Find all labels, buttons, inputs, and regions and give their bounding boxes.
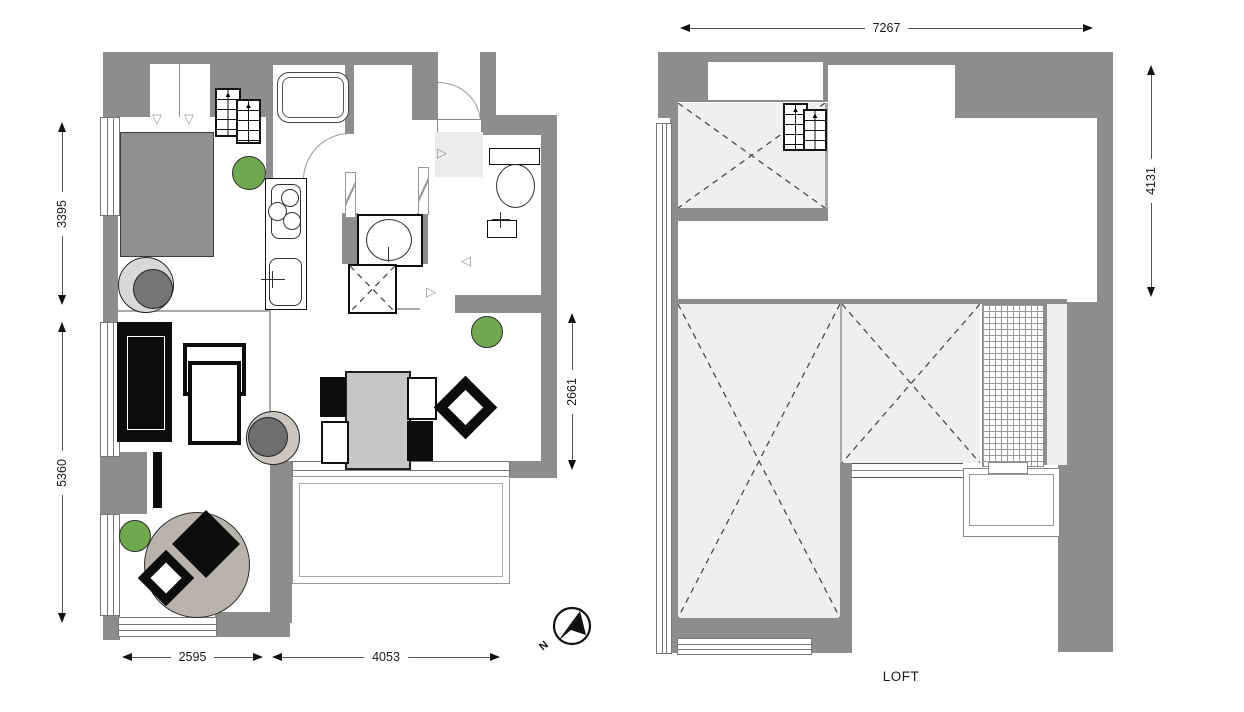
dimension-label: 2661	[565, 370, 579, 414]
exterior-wall	[412, 52, 438, 120]
exterior-wall	[1058, 465, 1113, 652]
terrace-inner-line	[299, 483, 503, 577]
closet-door-marker-icon: ▽	[152, 112, 162, 125]
loft-mesh-floor	[982, 304, 1044, 467]
terrace	[292, 476, 510, 584]
loft-bed-pillow	[988, 462, 1028, 474]
window	[100, 514, 120, 616]
dimension-main-left-lower: 5360	[54, 322, 70, 623]
dimension-main-bottom-right: 4053	[272, 649, 500, 665]
exterior-wall	[1097, 52, 1113, 470]
washing-machine-x	[350, 266, 395, 312]
sofa	[117, 322, 172, 442]
void-x-lines	[678, 304, 840, 618]
loft-bed	[963, 468, 1060, 537]
dimension-main-right: 2661	[564, 313, 580, 470]
exterior-wall	[828, 52, 955, 65]
wall-cabinet-block	[100, 452, 147, 514]
burner-icon	[283, 212, 301, 230]
round-chair-seat	[133, 269, 173, 309]
faucet-icon	[261, 279, 285, 280]
faucet-icon	[272, 271, 273, 288]
window	[677, 638, 812, 655]
exterior-wall	[658, 52, 678, 118]
plant-icon	[232, 156, 266, 190]
interior-wall	[678, 208, 828, 221]
bed	[120, 132, 214, 257]
window	[100, 117, 120, 216]
dimension-label: 4053	[364, 650, 408, 664]
dimension-main-left-upper: 3395	[54, 122, 70, 305]
dining-chair	[320, 377, 346, 417]
round-chair-seat	[248, 417, 288, 457]
exterior-wall	[273, 52, 412, 65]
loft-bed-inner	[969, 474, 1054, 526]
washing-machine-icon	[348, 264, 397, 314]
loft-ledge	[1047, 304, 1067, 465]
loft-void-area	[678, 304, 840, 618]
dining-chair	[407, 377, 437, 420]
interior-wall	[455, 295, 557, 313]
dimension-label: 4131	[1144, 159, 1158, 203]
dimension-label: 2595	[171, 650, 215, 664]
exterior-wall	[480, 52, 496, 120]
dimension-label: 3395	[55, 192, 69, 236]
dining-chair	[321, 421, 349, 464]
sofa-cushion-line	[127, 336, 165, 430]
washbasin-drain	[388, 247, 389, 262]
window	[656, 123, 672, 654]
kitchen-sink-icon	[269, 258, 302, 306]
compass-graphic	[552, 606, 592, 646]
dimension-main-bottom-left: 2595	[122, 649, 263, 665]
closet-divider	[179, 64, 180, 117]
closet	[150, 64, 210, 117]
exterior-wall	[215, 612, 290, 637]
entrance-door-arc	[438, 82, 481, 123]
exterior-wall	[103, 213, 118, 323]
hand-sink-icon	[487, 220, 517, 238]
bathroom-door-arc	[303, 133, 350, 180]
interior-wall	[342, 213, 358, 264]
dimension-loft-top: 7267	[680, 20, 1093, 36]
door-jamb	[345, 172, 356, 218]
door-swing-marker-icon: ◁	[461, 254, 471, 267]
dining-chair	[407, 421, 433, 461]
door-jamb	[418, 167, 429, 215]
toilet-bowl-icon	[496, 164, 535, 208]
void-x-lines	[842, 304, 980, 463]
exterior-wall	[508, 461, 557, 478]
dining-table	[345, 371, 411, 470]
door-swing-marker-icon: ▷	[437, 146, 447, 159]
stairs-icon: ▲	[236, 99, 261, 144]
floorplan-canvas: ▽ ▽ ▲ ▲ ▷ ◁ ▷	[0, 0, 1244, 712]
interior-wall	[266, 64, 273, 179]
dimension-label: 7267	[865, 21, 909, 35]
washbasin-bowl	[366, 219, 412, 261]
hand-sink-faucet	[492, 219, 510, 220]
bathtub-inner	[282, 77, 344, 118]
desk-chair	[188, 361, 241, 445]
bathtub-icon	[277, 72, 349, 123]
hand-sink-faucet	[500, 212, 501, 228]
north-compass-icon	[552, 606, 592, 646]
loft-label: LOFT	[856, 669, 946, 684]
plant-icon	[471, 316, 503, 348]
exterior-wall	[1067, 302, 1097, 465]
loft-railing	[852, 463, 963, 478]
dimension-loft-right: 4131	[1143, 65, 1159, 297]
loft-void-area	[842, 304, 980, 463]
tv-stand	[153, 452, 162, 508]
north-label: N	[537, 639, 551, 653]
door-swing-marker-icon: ▷	[426, 285, 436, 298]
exterior-wall	[270, 461, 292, 623]
loft-closet	[708, 62, 823, 100]
dimension-label: 5360	[55, 451, 69, 495]
stairs-icon: ▲	[803, 109, 827, 151]
toilet-tank-icon	[489, 148, 540, 165]
window	[118, 617, 217, 637]
exterior-wall	[955, 52, 1098, 118]
closet-door-marker-icon: ▽	[184, 112, 194, 125]
